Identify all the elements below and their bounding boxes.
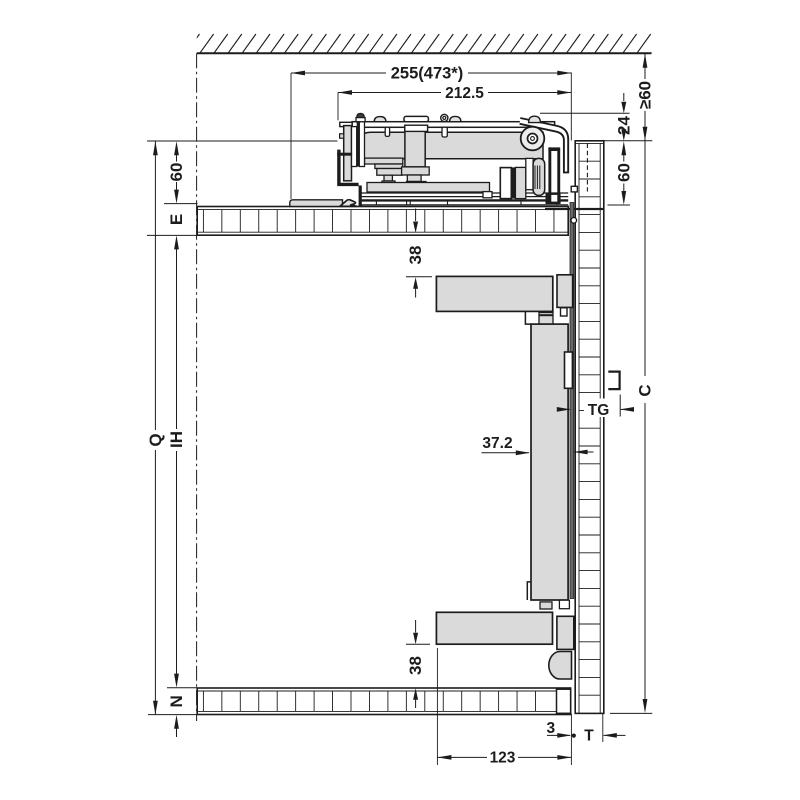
svg-text:T: T [584, 728, 594, 745]
svg-text:IH: IH [167, 431, 186, 448]
svg-text:≥60: ≥60 [636, 81, 655, 109]
svg-text:E: E [167, 214, 186, 225]
svg-text:3: 3 [546, 720, 555, 737]
svg-text:38: 38 [406, 246, 425, 265]
svg-text:38: 38 [406, 656, 425, 675]
svg-text:60: 60 [614, 163, 633, 182]
svg-text:212.5: 212.5 [445, 85, 484, 102]
svg-text:37.2: 37.2 [482, 435, 512, 452]
svg-text:255(473*): 255(473*) [391, 65, 463, 83]
svg-text:C: C [636, 384, 655, 396]
svg-text:N: N [167, 695, 186, 707]
svg-text:60: 60 [167, 163, 186, 182]
svg-text:TG: TG [588, 402, 610, 419]
svg-text:Q: Q [146, 433, 165, 446]
svg-text:123: 123 [490, 750, 516, 767]
